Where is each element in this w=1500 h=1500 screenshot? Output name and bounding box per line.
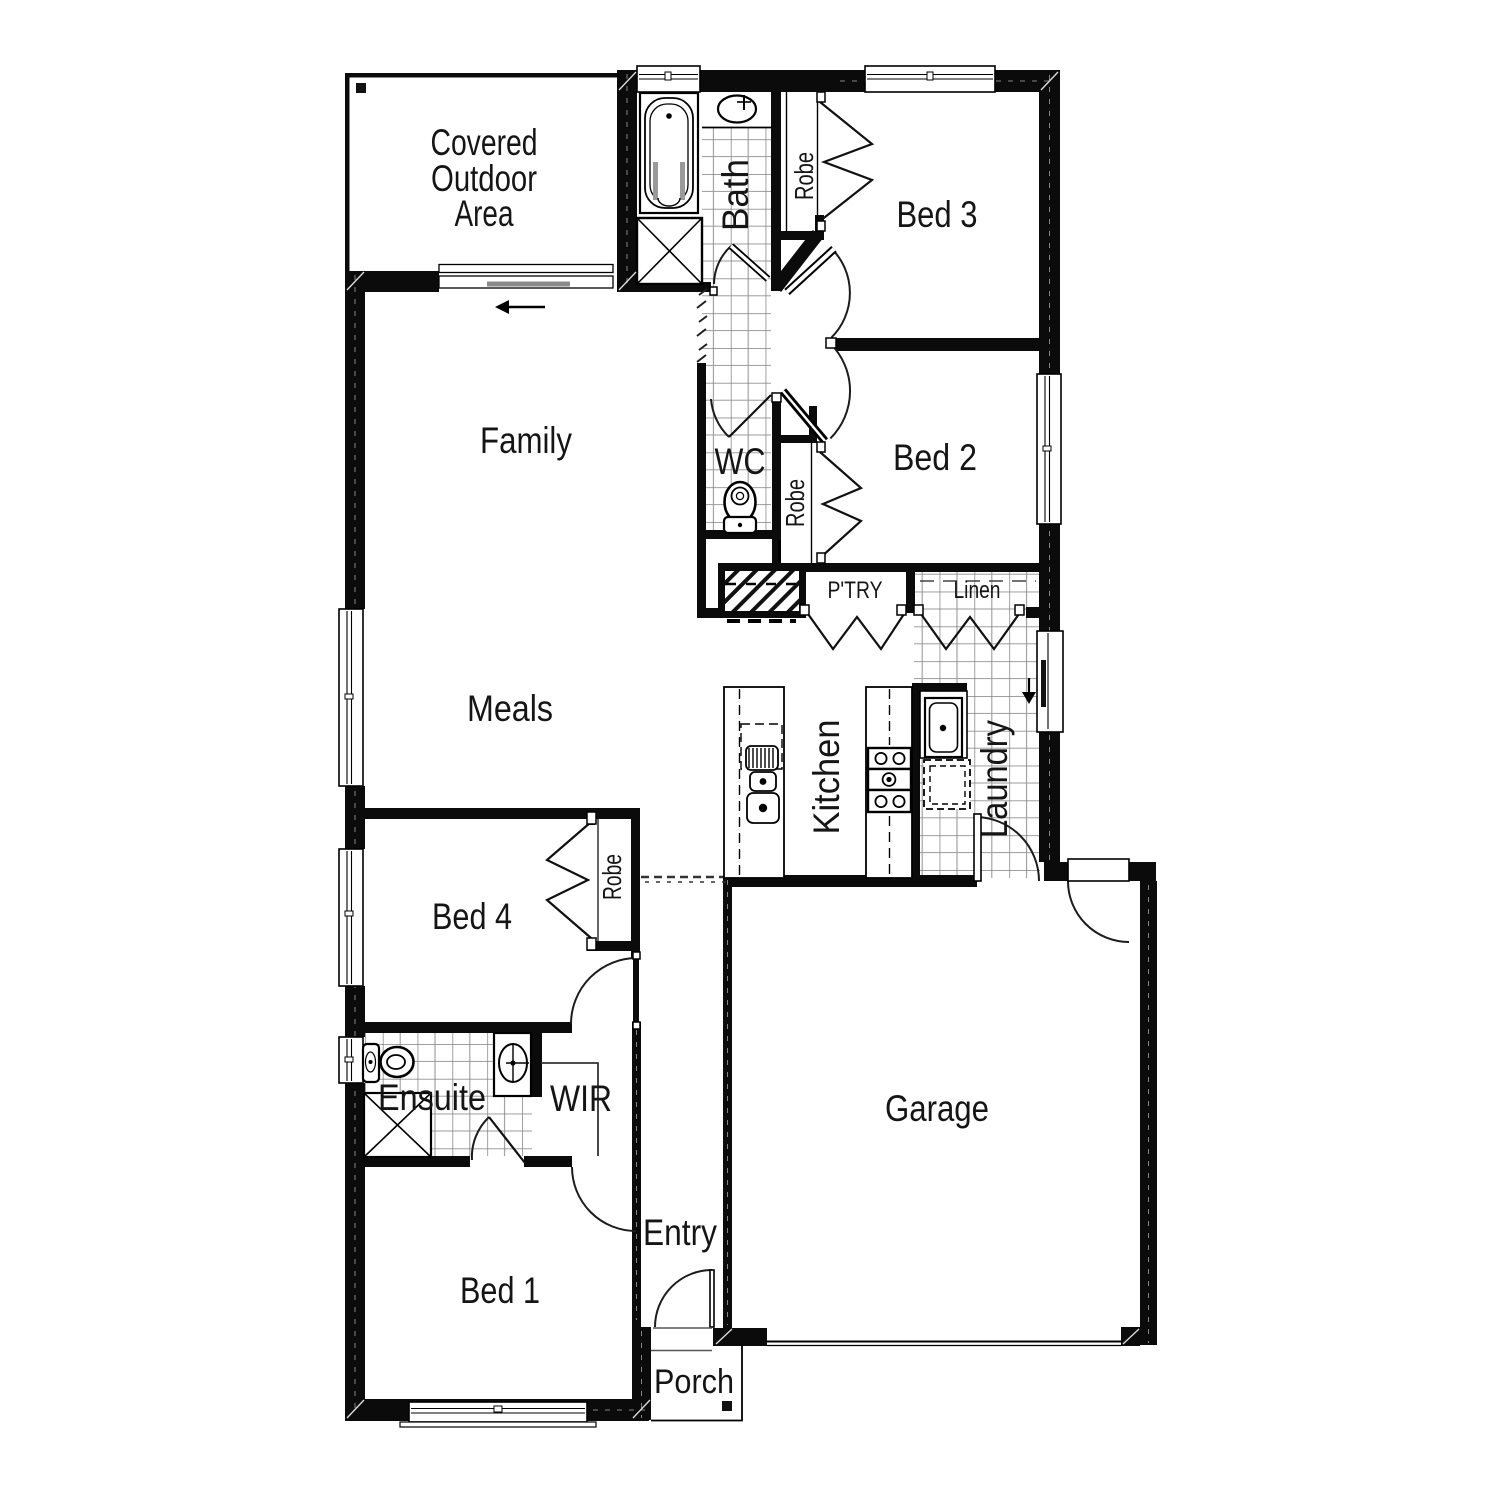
svg-text:Bed 3: Bed 3 (897, 194, 978, 235)
svg-text:Entry: Entry (643, 1212, 717, 1253)
svg-text:Robe: Robe (597, 854, 627, 900)
svg-text:Ensuite: Ensuite (378, 1077, 486, 1118)
svg-text:Porch: Porch (654, 1363, 734, 1401)
svg-text:WC: WC (715, 441, 766, 482)
svg-text:Linen: Linen (954, 577, 1001, 604)
svg-text:Robe: Robe (780, 479, 810, 527)
svg-text:Family: Family (480, 420, 572, 461)
svg-text:Laundry: Laundry (974, 720, 1015, 838)
svg-text:WIR: WIR (550, 1078, 612, 1119)
svg-text:Bed 4: Bed 4 (432, 896, 512, 937)
svg-text:Meals: Meals (467, 688, 553, 729)
svg-text:Kitchen: Kitchen (806, 720, 847, 835)
svg-text:Bath: Bath (715, 159, 756, 231)
svg-text:Bed 1: Bed 1 (460, 1270, 540, 1311)
svg-text:Robe: Robe (789, 152, 819, 200)
svg-text:Covered: Covered (431, 122, 538, 163)
svg-text:P'TRY: P'TRY (828, 577, 883, 604)
svg-text:Bed 2: Bed 2 (893, 437, 977, 478)
svg-text:Garage: Garage (885, 1088, 989, 1129)
svg-text:Area: Area (455, 193, 514, 234)
